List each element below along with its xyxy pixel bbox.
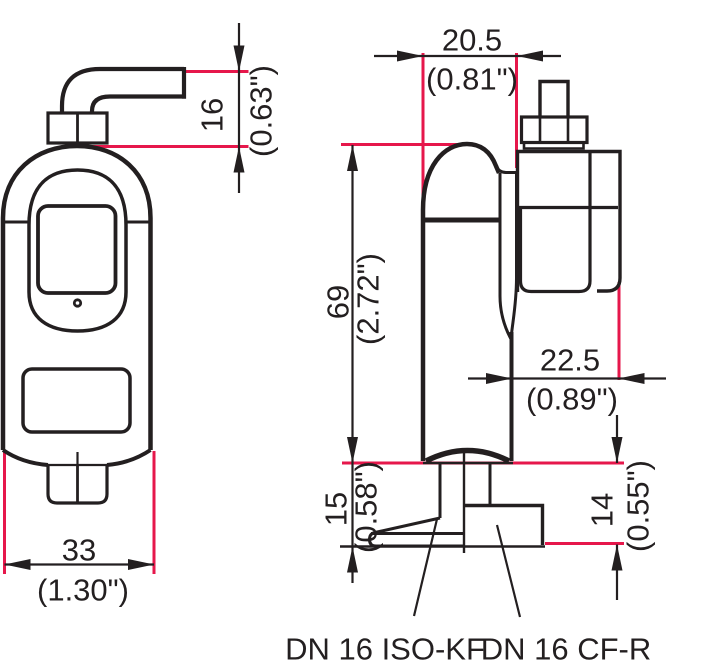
arrow-left-icon <box>619 373 645 384</box>
arrow-right-icon <box>397 51 423 62</box>
arrow-right-icon <box>486 373 512 384</box>
dim-body-height-mm: 69 <box>323 285 354 319</box>
flange-plate-right <box>512 171 517 334</box>
dimension-drawing: 20.5 (0.81") 16 (0.63") 69 (2.72") 22.5 … <box>0 0 709 672</box>
dim-head-width-mm: 20.5 <box>442 25 502 56</box>
dim-body-height-inch: (2.72") <box>353 253 384 345</box>
display-window <box>38 206 116 293</box>
side-tube-outline <box>423 144 499 461</box>
front-view <box>3 67 184 503</box>
connector-lower-section <box>521 208 591 292</box>
dim-kf-height-mm: 15 <box>321 492 352 526</box>
dim-cable-offset-inch: (0.63") <box>246 65 277 157</box>
arrow-right-icon <box>128 559 154 570</box>
connector-hex-flats <box>540 117 568 143</box>
bottom-dome-arc <box>426 451 509 462</box>
connector-body-outline <box>518 152 621 293</box>
cable <box>62 67 184 114</box>
connector-hex-nut <box>522 117 588 143</box>
front-hex-top <box>48 452 107 466</box>
cf-flange <box>464 506 543 546</box>
dim-connector-length-mm: 22.5 <box>540 345 600 376</box>
flange-plate-left <box>500 173 512 340</box>
red-extension-lines <box>5 53 625 574</box>
dim-body-width-mm: 33 <box>62 535 96 566</box>
arrow-left-icon <box>5 559 31 570</box>
indicator-dot <box>74 300 80 306</box>
dim-head-width-inch: (0.81") <box>426 64 518 95</box>
connector <box>518 82 621 293</box>
dim-cable-offset-mm: 16 <box>197 98 228 132</box>
arrow-up-icon <box>347 145 358 171</box>
flange-label-iso-kf: DN 16 ISO-KF <box>285 634 485 665</box>
flange-plate-top <box>496 166 517 173</box>
flange-label-cf-r: DN 16 CF-R <box>481 634 652 665</box>
dim-kf-height-inch: (0.58") <box>351 461 382 553</box>
arrow-left-icon <box>517 51 543 62</box>
leader-line-cf-r <box>497 525 520 617</box>
label-panel <box>23 369 130 432</box>
kf-flange <box>370 518 464 546</box>
dim-cf-height-mm: 14 <box>587 493 618 527</box>
dim-connector-length-inch: (0.89") <box>526 384 618 415</box>
dim-cf-height-inch: (0.55") <box>623 460 654 552</box>
dim-body-width-inch: (1.30") <box>37 575 129 606</box>
connector-body-dividers <box>518 152 619 208</box>
connector-stud <box>540 82 568 118</box>
arrow-down-icon <box>347 437 358 463</box>
